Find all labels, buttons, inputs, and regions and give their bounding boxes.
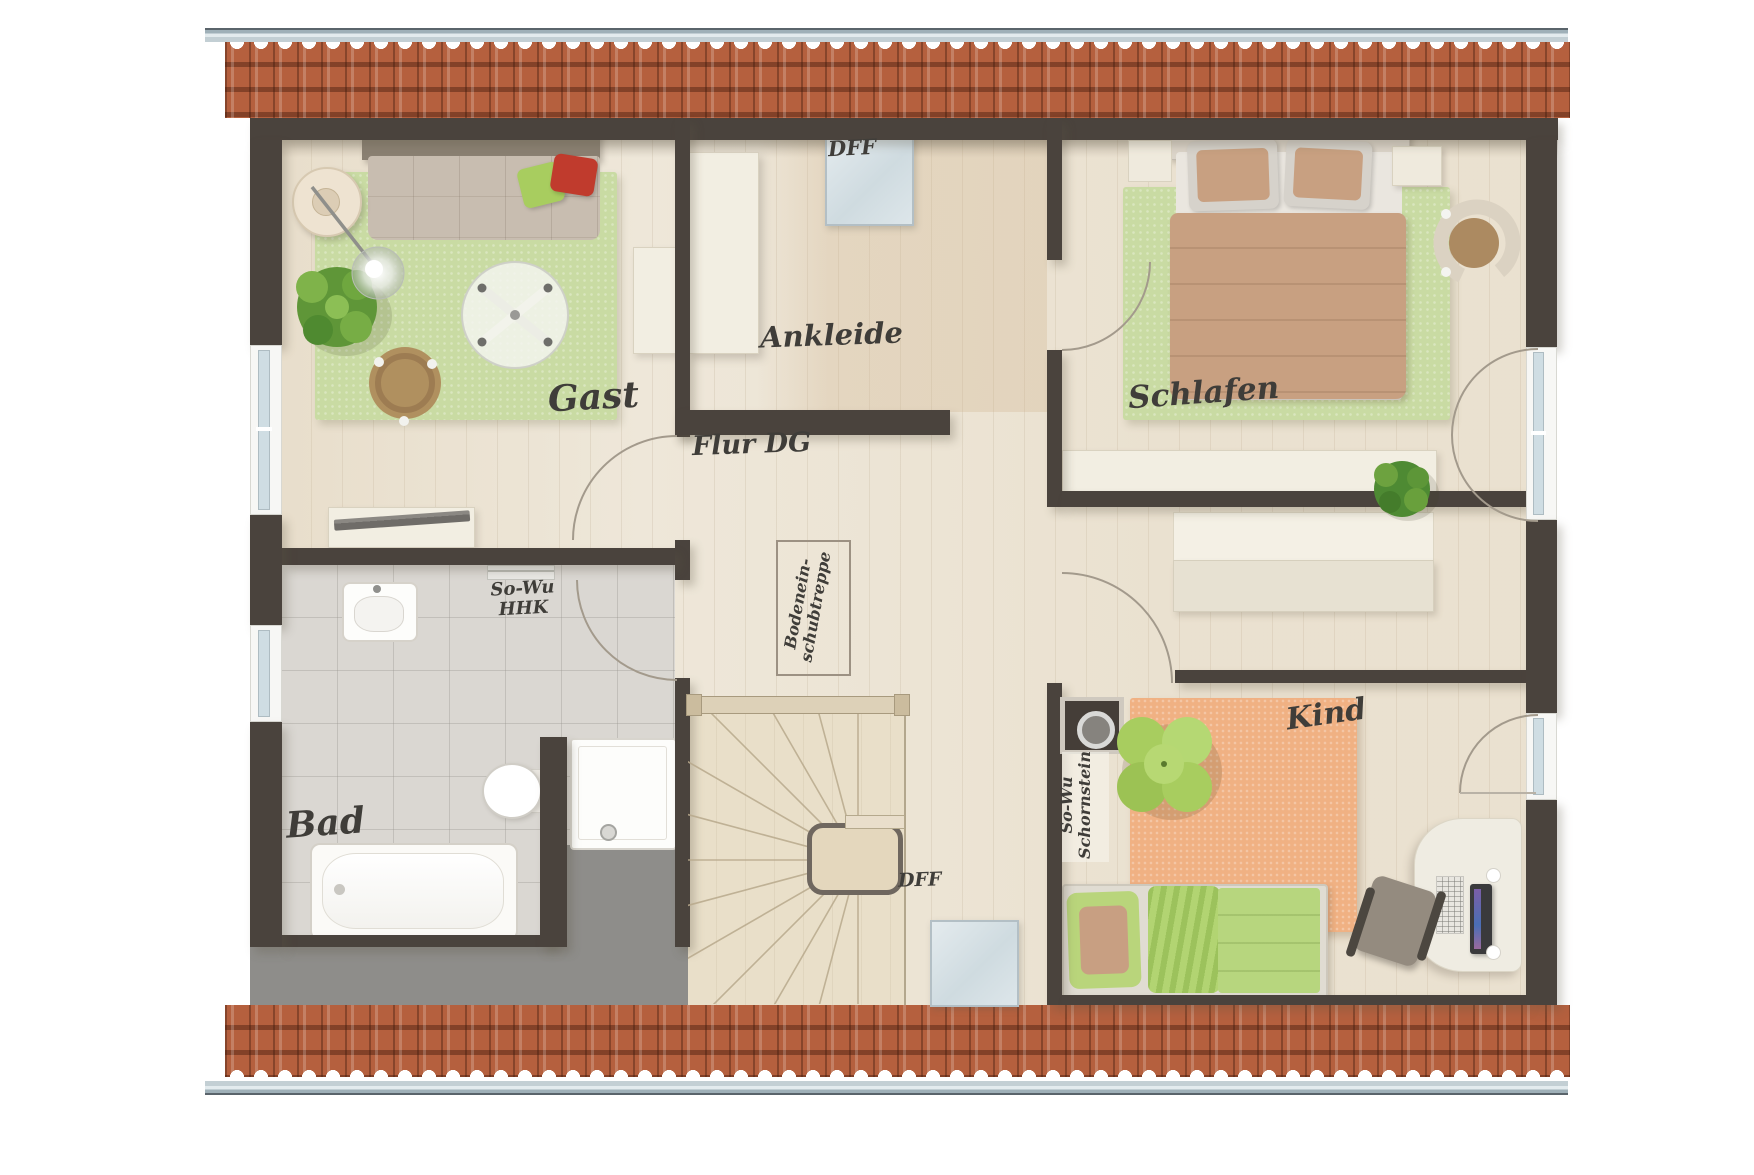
handrail (686, 696, 910, 714)
pouf-gast (369, 347, 441, 426)
label-sowu-schornstein-line2: Schornstein (1076, 748, 1094, 862)
stair-newel-cap (845, 815, 905, 829)
door-arc-balcony-upper (1452, 349, 1538, 435)
label-sowu-schornstein: So-Wu Schornstein (1058, 748, 1108, 862)
door-arc-bad (577, 580, 677, 680)
door-arc-gast (573, 436, 677, 540)
handrail-post-left (686, 694, 702, 716)
coffee-table (462, 262, 568, 368)
label-dff-top: DFF (827, 135, 876, 161)
door-arc-kind (1062, 573, 1172, 683)
room-label-gast: Gast (547, 376, 640, 420)
door-arc-schlafen (1062, 262, 1150, 350)
label-sowu-hhk: So-Wu HHK (467, 576, 579, 621)
room-label-ankleide: Ankleide (759, 318, 903, 355)
floorplan-attic: Gast Ankleide Schlafen Flur DG Bad Kind … (0, 0, 1754, 1175)
stair-newel (807, 823, 903, 895)
plant-schlafen (1374, 461, 1439, 521)
window-arc-kind (1460, 715, 1538, 793)
door-arc-balcony-lower (1452, 435, 1538, 521)
room-label-bad: Bad (285, 801, 367, 846)
plan-overlay (0, 0, 1754, 1175)
flower-pouf (1117, 717, 1222, 820)
label-sowu-schornstein-line1: So-Wu (1058, 748, 1076, 862)
armchair-schlafen (1429, 195, 1525, 291)
label-dff-bottom: DFF (898, 869, 942, 891)
handrail-post-right (894, 694, 910, 716)
room-label-flur: Flur DG (692, 428, 812, 462)
